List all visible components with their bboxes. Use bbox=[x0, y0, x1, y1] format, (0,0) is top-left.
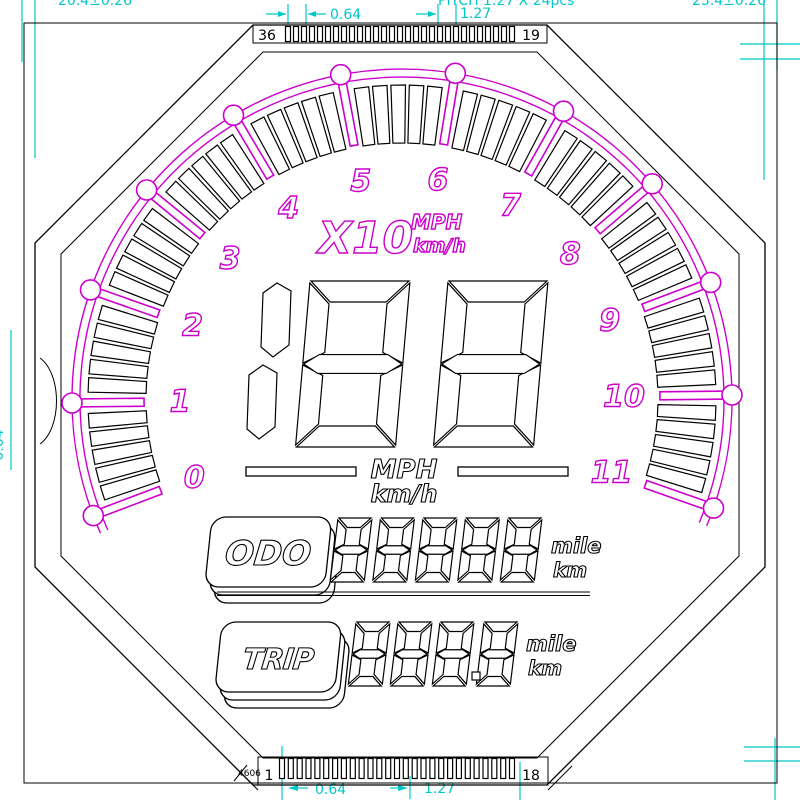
trip-label: TRIP bbox=[241, 642, 315, 676]
top-pin-tick bbox=[302, 27, 307, 42]
top-pin-tick bbox=[358, 27, 363, 42]
dial-pin-dot bbox=[83, 506, 103, 526]
bottom-pin-tick bbox=[421, 759, 426, 779]
odo-label: ODO bbox=[223, 534, 313, 574]
bottom-pin-tick bbox=[333, 759, 338, 779]
top-pin-tick bbox=[382, 27, 387, 42]
trip-decimal-point bbox=[472, 672, 480, 680]
odo-digit bbox=[500, 518, 542, 582]
bottom-pin-tick bbox=[395, 759, 400, 779]
cut-text-top-left: 20.4±0.26 bbox=[58, 0, 132, 9]
bottom-pin-tick bbox=[315, 759, 320, 779]
top-pin-tick bbox=[318, 27, 323, 42]
dial-number-11: 11 bbox=[591, 455, 633, 490]
bottom-pin-tick bbox=[359, 759, 364, 779]
top-pin-tick bbox=[486, 27, 491, 42]
cut-text-left-vertical: 0.64 bbox=[0, 429, 7, 460]
top-pin-tick bbox=[390, 27, 395, 42]
dial-number-3: 3 bbox=[220, 241, 241, 276]
trip-unit-mile: mile bbox=[526, 632, 577, 656]
top-pin-tick bbox=[430, 27, 435, 42]
trip-unit-km: km bbox=[528, 656, 562, 680]
top-pin-tick bbox=[398, 27, 403, 42]
bottom-pin-tick bbox=[501, 759, 506, 779]
unit-bar-left bbox=[246, 467, 356, 476]
cut-text-top-center: PITCH 1.27 X 24pcs bbox=[438, 0, 574, 9]
odo-unit-km: km bbox=[553, 558, 587, 582]
speed-digit-1-lower bbox=[247, 365, 277, 439]
bottom-pin-tick bbox=[324, 759, 329, 779]
odo-unit-mile: mile bbox=[551, 534, 602, 558]
top-pin-tick bbox=[502, 27, 507, 42]
bottom-pin-tick bbox=[386, 759, 391, 779]
dial-pin-dot bbox=[445, 63, 465, 83]
dial-number-0: 0 bbox=[184, 461, 205, 496]
dial-unit-kmh: km/h bbox=[413, 235, 466, 257]
bottom-pin-ticks bbox=[280, 759, 515, 779]
dial-number-5: 5 bbox=[350, 164, 371, 199]
lcd-segment-drawing-page: 0.64 1.27 0.64 1.27 20.4±0.26 PITCH 1.27… bbox=[0, 0, 800, 800]
bottom-pin-tick bbox=[297, 759, 302, 779]
top-pin-tick bbox=[422, 27, 427, 42]
pin-label-1: 1 bbox=[265, 768, 274, 784]
bottom-pin-tick bbox=[456, 759, 461, 779]
trip-badge: TRIP bbox=[213, 622, 352, 708]
bottom-pin-tick bbox=[403, 759, 408, 779]
bottom-pin-tick bbox=[350, 759, 355, 779]
dial-number-4: 4 bbox=[277, 191, 299, 226]
bottom-pin-tick bbox=[439, 759, 444, 779]
bottom-pin-tick bbox=[368, 759, 373, 779]
odo-badge: ODO bbox=[203, 517, 342, 603]
bottom-pin-tick bbox=[448, 759, 453, 779]
speed-digit-1-upper bbox=[261, 283, 291, 357]
top-pin-tick bbox=[366, 27, 371, 42]
bottom-pin-tick bbox=[465, 759, 470, 779]
cut-text-top-right: 23.4±0.26 bbox=[692, 0, 766, 9]
dial-pin-dot bbox=[224, 105, 244, 125]
trip-digit bbox=[432, 622, 474, 686]
top-pin-tick bbox=[414, 27, 419, 42]
pin-label-36: 36 bbox=[258, 28, 276, 44]
odo-digit bbox=[330, 518, 372, 582]
top-pin-tick bbox=[350, 27, 355, 42]
dial-legend: X10 MPH km/h bbox=[315, 210, 466, 264]
top-pin-tick bbox=[446, 27, 451, 42]
trip-digit bbox=[390, 622, 432, 686]
top-pin-tick bbox=[286, 27, 291, 42]
top-pin-tick bbox=[470, 27, 475, 42]
dial-number-7: 7 bbox=[500, 188, 521, 223]
speedometer-lcd-drawing: 0.64 1.27 0.64 1.27 20.4±0.26 PITCH 1.27… bbox=[0, 0, 800, 800]
odo-digit bbox=[458, 518, 500, 582]
dial-pin-dot bbox=[81, 280, 101, 300]
dial-number-10: 10 bbox=[603, 379, 645, 414]
part-note: 4606 bbox=[238, 769, 261, 779]
top-pin-tick bbox=[478, 27, 483, 42]
bottom-pin-tick bbox=[412, 759, 417, 779]
top-pin-tick bbox=[310, 27, 315, 42]
top-pin-tick bbox=[454, 27, 459, 42]
trip-digit bbox=[476, 622, 518, 686]
bottom-pin-tick bbox=[288, 759, 293, 779]
odo-digit bbox=[415, 518, 457, 582]
top-pin-tick bbox=[342, 27, 347, 42]
top-pin-tick bbox=[462, 27, 467, 42]
bottom-pin-tick bbox=[474, 759, 479, 779]
dial-pin-dot bbox=[704, 498, 724, 518]
top-pin-tick bbox=[334, 27, 339, 42]
top-dim-0_64: 0.64 bbox=[330, 7, 361, 23]
dial-pin-dot bbox=[701, 272, 721, 292]
dial-number-8: 8 bbox=[560, 237, 581, 272]
trip-digit bbox=[348, 622, 390, 686]
dial-pin-dot bbox=[554, 101, 574, 121]
bottom-pin-tick bbox=[430, 759, 435, 779]
bottom-pin-tick bbox=[510, 759, 515, 779]
dial-pin-dot bbox=[642, 174, 662, 194]
dial-number-2: 2 bbox=[182, 309, 203, 344]
top-pin-tick bbox=[326, 27, 331, 42]
bottom-pin-tick bbox=[483, 759, 488, 779]
bottom-pin-tick bbox=[341, 759, 346, 779]
multiplier-x10: X10 bbox=[315, 213, 413, 264]
dial-pin-dot bbox=[722, 385, 742, 405]
dial-number-6: 6 bbox=[427, 163, 448, 198]
top-pin-tick bbox=[510, 27, 515, 42]
top-pin-tick bbox=[374, 27, 379, 42]
dial-number-1: 1 bbox=[170, 385, 191, 420]
bottom-pin-tick bbox=[280, 759, 285, 779]
unit-bar-right bbox=[458, 467, 568, 476]
odo-digit bbox=[373, 518, 415, 582]
bottom-pin-tick bbox=[306, 759, 311, 779]
dial-pin-dot bbox=[62, 393, 82, 413]
dial-pin-dot bbox=[331, 65, 351, 85]
bottom-pin-tick bbox=[492, 759, 497, 779]
speed-unit-kmh: km/h bbox=[371, 480, 438, 508]
top-pin-tick bbox=[294, 27, 299, 42]
dial-pin-dot bbox=[137, 180, 157, 200]
dial-unit-mph: MPH bbox=[411, 210, 463, 234]
bottom-pin-tick bbox=[377, 759, 382, 779]
top-pin-tick bbox=[494, 27, 499, 42]
pin-label-18: 18 bbox=[522, 768, 540, 784]
top-pin-tick bbox=[438, 27, 443, 42]
dial-segment bbox=[391, 85, 406, 143]
top-pin-ticks bbox=[286, 27, 515, 42]
pin-label-19: 19 bbox=[522, 28, 540, 44]
dial-number-9: 9 bbox=[599, 304, 620, 339]
top-pin-tick bbox=[406, 27, 411, 42]
